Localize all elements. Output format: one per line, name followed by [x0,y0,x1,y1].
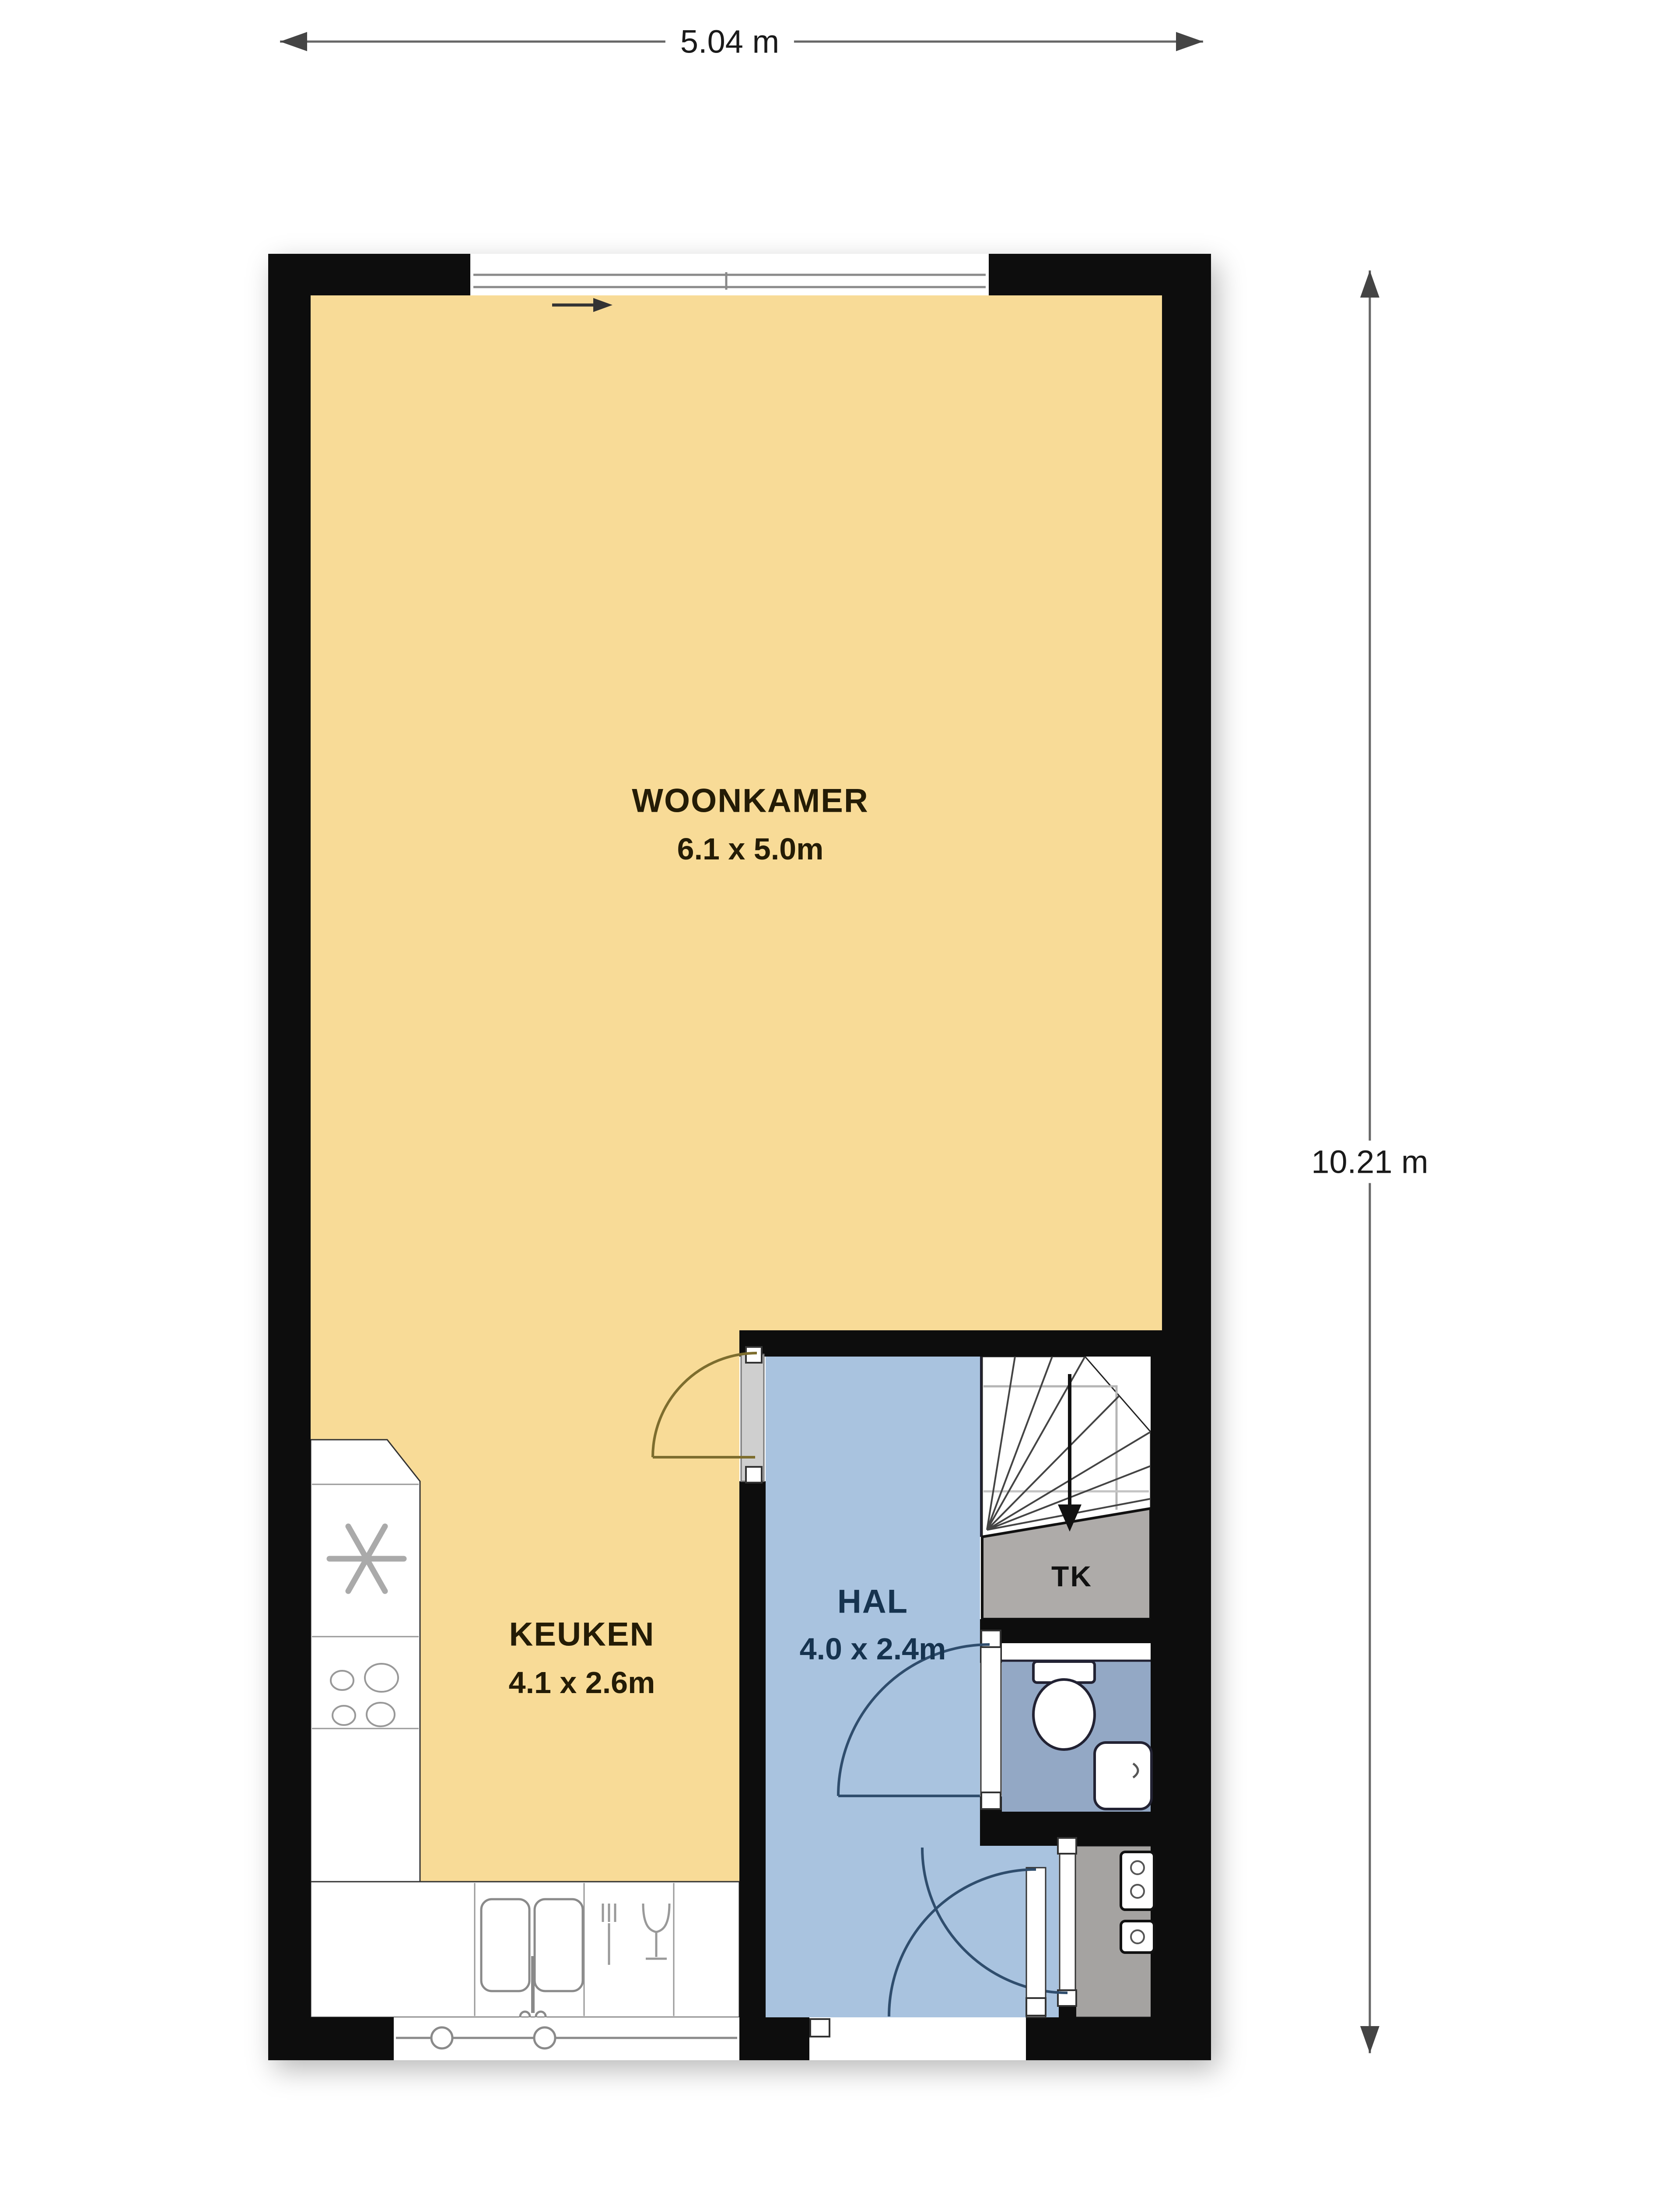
toilet-doorway [981,1645,1001,1795]
duct-band [1002,1643,1151,1661]
room-label-keuken: KEUKEN [509,1616,655,1654]
width-dimension-label: 5.04 m [665,21,794,63]
room-size-hal: 4.0 x 2.4m [800,1631,946,1666]
room-label-woonkamer: WOONKAMER [632,782,869,820]
kitchen-window [394,2017,739,2060]
top-window [470,254,989,295]
storage-appliances [1121,1852,1154,1953]
storage-doorway [1060,1848,1075,1992]
woonkamer-doorway [741,1354,764,1481]
floorplan-drawing [0,0,1680,2188]
room-label-tk: TK [1051,1560,1092,1593]
room-label-hal: HAL [837,1583,908,1621]
hal-floor-lower [766,1836,1059,2017]
front-door-leaf [1026,1868,1046,2017]
front-door-opening [809,2017,1026,2060]
toilet-icon [1033,1662,1095,1750]
height-dimension-label: 10.21 m [1296,1141,1443,1183]
corner-sink-icon [1095,1743,1151,1809]
room-size-keuken: 4.1 x 2.6m [509,1665,655,1700]
room-size-woonkamer: 6.1 x 5.0m [677,831,824,866]
